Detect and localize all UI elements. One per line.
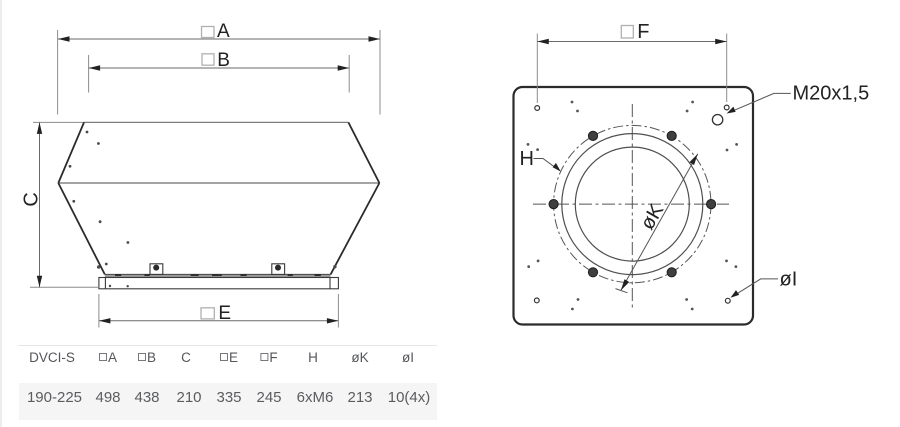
svg-text:øI: øI xyxy=(780,269,798,291)
svg-text:C: C xyxy=(21,192,43,206)
svg-text:E: E xyxy=(218,303,231,324)
svg-text:F: F xyxy=(637,21,649,43)
svg-text:B: B xyxy=(217,50,230,71)
svg-text:A: A xyxy=(217,21,230,42)
svg-text:M20x1,5: M20x1,5 xyxy=(793,83,870,105)
svg-text:H: H xyxy=(520,148,534,170)
